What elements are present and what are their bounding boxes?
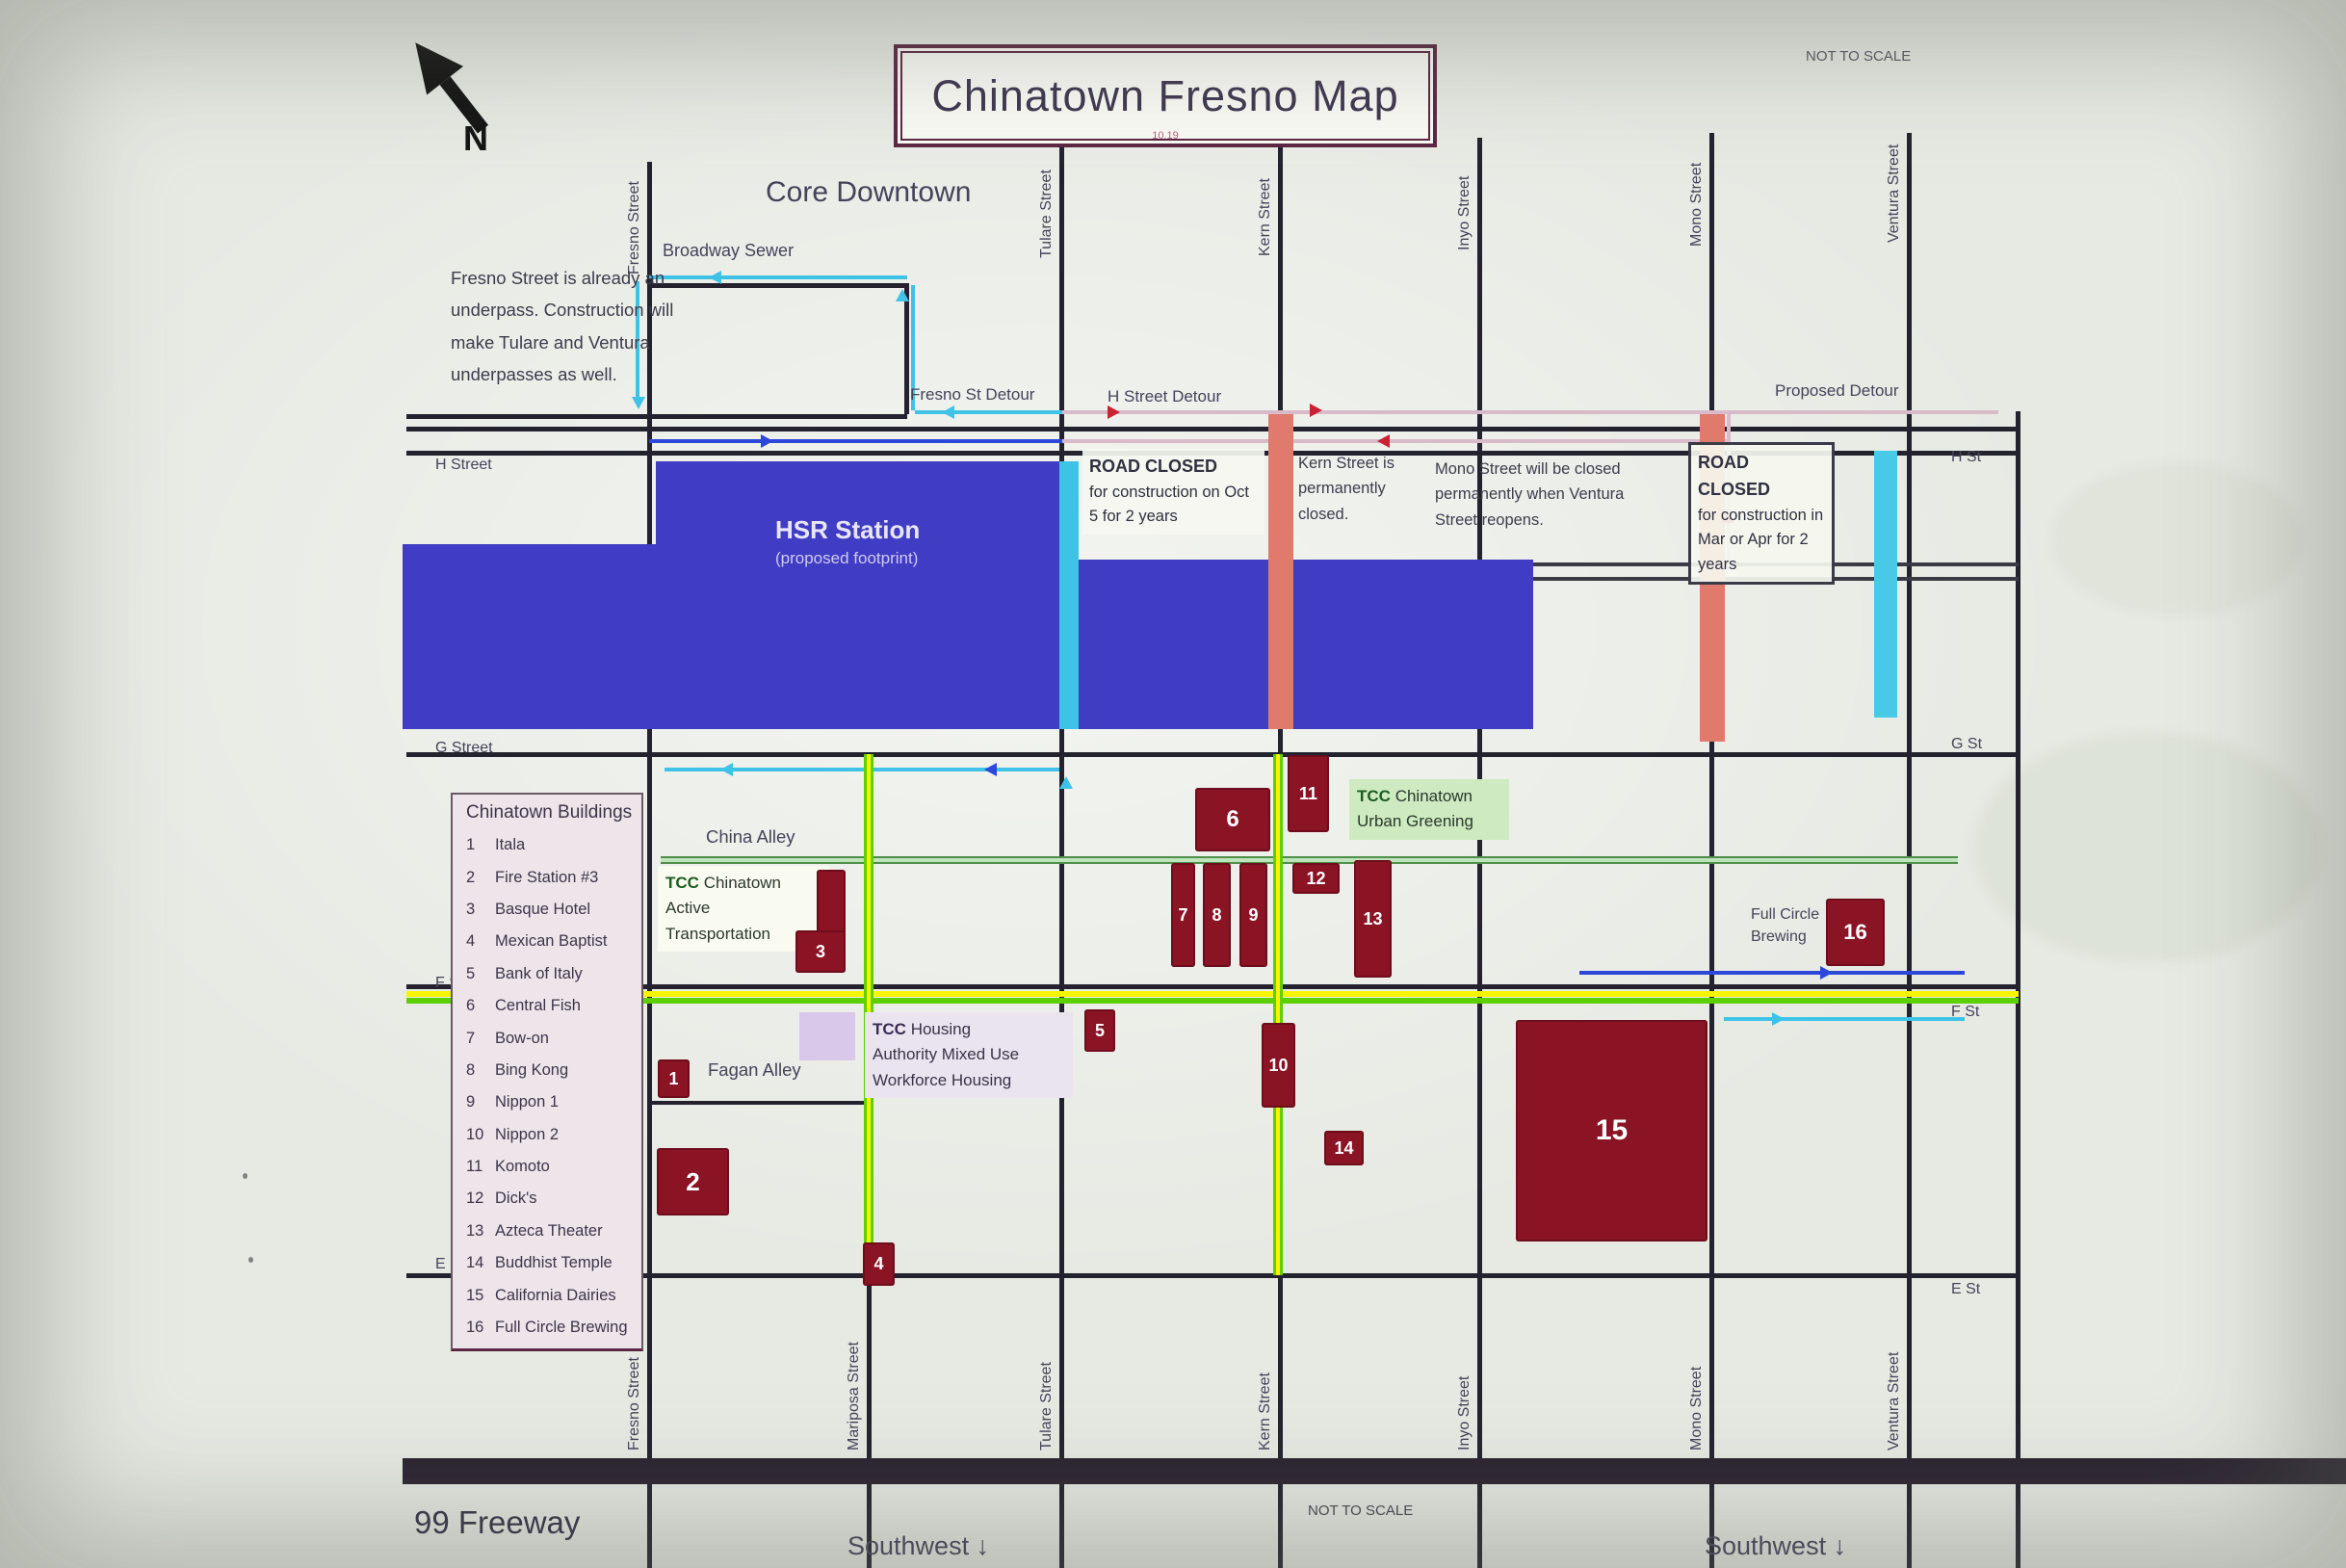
legend-item: 8Bing Kong [466, 1055, 641, 1086]
street-label-vertical: Kern Street [1257, 178, 1274, 256]
tulare-underpass-cyan-bar [1059, 461, 1079, 729]
street-label-vertical: Ventura Street [1886, 1352, 1903, 1450]
tcc-housing-prefix: TCC [873, 1020, 906, 1038]
street-label-right: G St [1951, 736, 1982, 753]
legend-item: 14Buddhist Temple [466, 1247, 641, 1279]
tcc-housing-line2: Authority Mixed Use [873, 1042, 1065, 1067]
street-label-right: E St [1951, 1281, 1980, 1298]
tcc-greening-line2: Urban Greening [1357, 809, 1501, 834]
inyo-street-line [1477, 138, 1482, 1568]
detour-arrow [984, 763, 997, 776]
detour-arrow [1059, 776, 1073, 789]
street-label-vertical: Mono Street [1688, 1367, 1706, 1450]
street-label-vertical: Mono Street [1688, 163, 1706, 247]
map-title-note: 10.19 [898, 130, 1433, 142]
building-marker-9: 9 [1239, 863, 1267, 967]
detour-arrow [709, 271, 721, 284]
detour-arrow [896, 289, 909, 301]
legend-item: 15California Dairies [466, 1279, 641, 1311]
hsr-label: HSR Station (proposed footprint) [775, 515, 920, 568]
chinatown-fresno-map: HSR Station (proposed footprint) Chinato… [0, 0, 2346, 1568]
detour-arrow [1820, 966, 1833, 980]
map-title-box: Chinatown Fresno Map 10.19 [894, 44, 1437, 147]
tcc-greening-line1: Chinatown [1395, 787, 1473, 805]
h-street-detour-pink-lower [1062, 439, 1729, 443]
building-marker-13: 13 [1354, 860, 1392, 978]
fresno-st-detour-label: Fresno St Detour [910, 385, 1034, 405]
legend-item: 13Azteca Theater [466, 1215, 641, 1247]
southwest-label-right: Southwest ↓ [1705, 1531, 1846, 1561]
tcc-housing-line1: Housing [911, 1020, 971, 1038]
road-closed-oct-body: for construction on Oct 5 for 2 years [1089, 483, 1249, 526]
scale-note-bottom: NOT TO SCALE [1308, 1503, 1413, 1519]
kern-closed-note: Kern Street is permanently closed. [1298, 451, 1412, 527]
southwest-label-left: Southwest ↓ [847, 1531, 989, 1561]
hsr-footprint-left-arm [403, 544, 656, 729]
f-street-line [406, 984, 2019, 989]
h-street-blue-line [649, 439, 1062, 443]
hsr-footprint-right-arm [1062, 560, 1533, 729]
detour-arrow [1772, 1012, 1785, 1026]
g-street-line [406, 752, 2019, 757]
mono-street-line [1709, 133, 1714, 1568]
mariposa-street-line [867, 1275, 872, 1568]
full-circle-brewing-label: Full Circle Brewing [1751, 903, 1832, 948]
broadway-connector-line [904, 283, 909, 414]
legend-title: Chinatown Buildings [466, 802, 641, 823]
tcc-greening-prefix: TCC [1357, 787, 1391, 805]
north-label: N [463, 118, 488, 158]
legend-item: 3Basque Hotel [466, 894, 641, 926]
housing-site-patch [799, 1012, 855, 1060]
broadway-sewer-label: Broadway Sewer [663, 241, 794, 261]
legend-item: 6Central Fish [466, 990, 641, 1022]
building-marker-5: 5 [1084, 1009, 1115, 1052]
h-street-detour-pink-upper [1062, 410, 1998, 414]
building-marker-10: 10 [1262, 1023, 1295, 1108]
legend-item: 4Mexican Baptist [466, 926, 641, 957]
street-label-vertical: Fresno Street [626, 1357, 643, 1450]
map-right-boundary-line [2016, 411, 2020, 1568]
broadway-detour-cyan [649, 275, 907, 279]
street-label-vertical: Kern Street [1257, 1372, 1274, 1450]
building-marker-11: 11 [1288, 755, 1329, 832]
map-title-inner-border: Chinatown Fresno Map [900, 51, 1430, 141]
hsr-subtitle: (proposed footprint) [775, 549, 920, 568]
f-street-yellow-highlight [406, 991, 2019, 997]
detour-arrow [1377, 434, 1390, 448]
street-label-vertical: Fresno Street [626, 181, 643, 274]
building-marker-14: 14 [1324, 1131, 1364, 1165]
building-marker-12: 12 [1292, 863, 1340, 894]
north-arrow-icon: N [390, 27, 515, 171]
legend-item: 16Full Circle Brewing [466, 1312, 641, 1344]
screen-light-patch [0, 0, 2346, 1568]
legend-item: 9Nippon 1 [466, 1086, 641, 1118]
hsr-title: HSR Station [775, 515, 920, 545]
fresno-st-detour-cyan [915, 410, 1062, 414]
detour-arrow [1310, 404, 1322, 417]
street-label-vertical: Tulare Street [1038, 1362, 1056, 1450]
building-marker-4: 4 [863, 1242, 895, 1286]
building-marker-8: 8 [1203, 863, 1231, 967]
street-label-vertical: Inyo Street [1456, 1376, 1473, 1450]
road-closed-oct-note: ROAD CLOSED for construction on Oct 5 fo… [1082, 449, 1264, 535]
core-downtown-label: Core Downtown [766, 176, 971, 209]
detour-arrow [761, 434, 773, 448]
f-street-cyan-detour-right [1724, 1017, 1965, 1021]
legend-item: 7Bow-on [466, 1022, 641, 1054]
china-alley-label: China Alley [706, 826, 795, 848]
road-closed-mar-note: ROAD CLOSED for construction in Mar or A… [1688, 442, 1835, 585]
tulare-street-line [1059, 143, 1064, 1568]
dust-speck [248, 1257, 253, 1263]
detour-arrow [942, 405, 954, 419]
legend-box: Chinatown Buildings 1Itala2Fire Station … [451, 793, 643, 1351]
broadway-line [649, 283, 907, 288]
legend-item: 5Bank of Italy [466, 958, 641, 990]
legend-items: 1Itala2Fire Station #33Basque Hotel4Mexi… [466, 829, 641, 1344]
detour-arrow [632, 397, 645, 409]
h-street-detour-label: H Street Detour [1108, 387, 1221, 406]
map-title: Chinatown Fresno Map [931, 71, 1398, 121]
building-marker-6: 6 [1195, 788, 1270, 851]
kern-green-highlight [1273, 754, 1283, 1275]
legend-item: 1Itala [466, 829, 641, 861]
tcc-active-line1: Chinatown [704, 874, 781, 892]
fagan-alley-line [649, 1101, 869, 1105]
detour-arrow [1108, 405, 1120, 419]
legend-item: 11Komoto [466, 1151, 641, 1183]
road-closed-oct-head: ROAD CLOSED [1089, 454, 1258, 481]
tcc-urban-greening-box: TCC Chinatown Urban Greening [1349, 779, 1509, 840]
building-marker-1: 1 [658, 1059, 690, 1098]
mono-closed-note: Mono Street will be closed permanently w… [1435, 457, 1639, 533]
freeway-99-bar [403, 1458, 2346, 1484]
building-marker-part [817, 870, 846, 939]
road-closed-mar-body: for construction in Mar or Apr for 2 yea… [1698, 507, 1823, 573]
building-marker-15: 15 [1516, 1020, 1707, 1241]
freeway-99-label: 99 Freeway [414, 1504, 580, 1541]
h-street-line-1 [406, 427, 2019, 431]
street-label-vertical: Ventura Street [1886, 144, 1903, 243]
fresno-underpass-note: Fresno Street is already an underpass. C… [451, 262, 686, 390]
street-label-vertical: Mariposa Street [846, 1342, 863, 1450]
dust-speck [243, 1173, 248, 1179]
fagan-alley-label: Fagan Alley [708, 1059, 801, 1081]
tcc-housing-line3: Workforce Housing [873, 1068, 1065, 1093]
building-marker-7: 7 [1171, 863, 1195, 967]
building-marker-3: 3 [795, 930, 846, 973]
hsr-footprint-main [656, 461, 1062, 729]
ventura-closed-cyan-bar [1874, 451, 1897, 718]
legend-item: 10Nippon 2 [466, 1119, 641, 1151]
street-label-right: F St [1951, 1004, 1979, 1021]
proposed-detour-label: Proposed Detour [1775, 381, 1899, 401]
street-label-vertical: Inyo Street [1456, 176, 1473, 250]
detour-arrow [720, 763, 733, 776]
street-label-left: G Street [435, 740, 493, 757]
road-closed-mar-head: ROAD CLOSED [1698, 450, 1825, 504]
legend-item: 12Dick's [466, 1183, 641, 1215]
kern-closed-salmon-bar [1268, 414, 1293, 729]
projector-ghost-artifact [2051, 462, 2302, 616]
f-street-green-highlight [406, 998, 2019, 1004]
street-label-vertical: Tulare Street [1038, 170, 1056, 258]
pre-detour-line [406, 414, 907, 419]
street-label-left: H Street [435, 457, 492, 474]
tcc-active-prefix: TCC [665, 874, 699, 892]
e-street-line [406, 1273, 2019, 1278]
building-marker-16: 16 [1826, 899, 1885, 966]
tcc-housing-box: TCC Housing Authority Mixed Use Workforc… [865, 1012, 1073, 1098]
ventura-street-line [1907, 133, 1912, 1568]
projector-ghost-artifact [1974, 732, 2321, 963]
legend-item: 2Fire Station #3 [466, 861, 641, 893]
street-label-right: H St [1951, 449, 1981, 466]
scale-note-top-right: NOT TO SCALE [1806, 48, 1911, 65]
tcc-active-line2: Active [665, 896, 821, 921]
f-street-blue-detour-right [1579, 971, 1965, 975]
building-marker-2: 2 [657, 1148, 729, 1215]
